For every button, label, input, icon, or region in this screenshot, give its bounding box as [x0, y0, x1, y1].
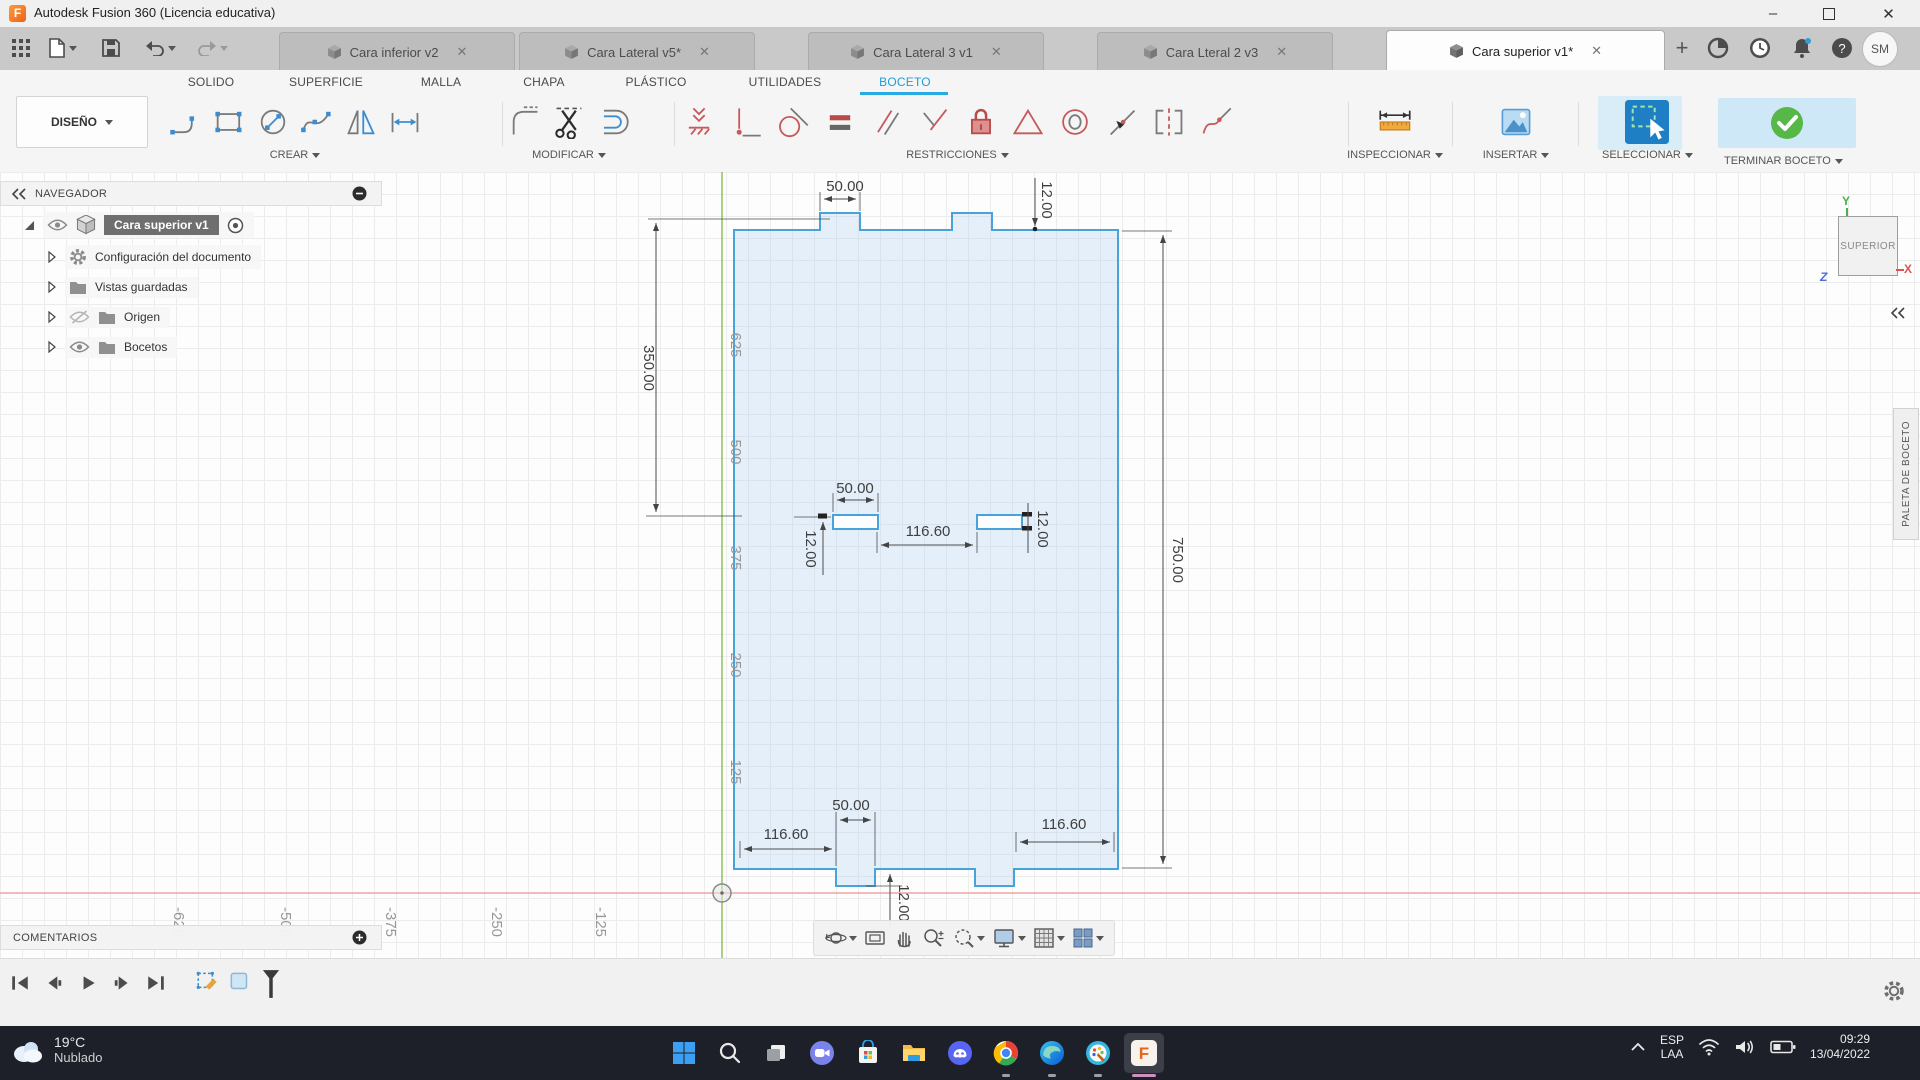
file-explorer-button[interactable] [894, 1033, 934, 1073]
dimension-label[interactable]: 350.00 [640, 345, 657, 391]
sketch-slot-right[interactable] [977, 515, 1022, 529]
running-indicator [1048, 1074, 1056, 1077]
file-explorer-icon [901, 1040, 927, 1066]
cube-icon [1449, 44, 1464, 59]
ribbon-separator [502, 102, 503, 146]
cube-icon [564, 45, 579, 60]
doc-tab-label: Cara Lateral 3 v1 [873, 45, 973, 60]
select-tool-icon-active[interactable] [1625, 100, 1669, 144]
finish-sketch-button[interactable] [1718, 98, 1856, 148]
visibility-eye-icon[interactable] [69, 340, 90, 354]
close-tab-icon[interactable]: ✕ [1276, 44, 1287, 60]
maximize-icon [1823, 8, 1835, 20]
fusion-360-taskbar-button[interactable]: F [1124, 1033, 1164, 1073]
panel-collapse-dot-icon[interactable] [352, 186, 367, 201]
chrome-button[interactable] [986, 1033, 1026, 1073]
caret-down-icon [1435, 153, 1443, 158]
tray-date: 13/04/2022 [1810, 1047, 1870, 1062]
extensions-icon [1706, 36, 1730, 60]
help-icon: ? [1830, 36, 1854, 60]
fusion-360-window: F Autodesk Fusion 360 (Licencia educativ… [0, 0, 1920, 1080]
orbit-button[interactable] [825, 927, 857, 949]
symmetry-constraint-icon[interactable] [1152, 105, 1186, 139]
extensions-button[interactable] [1702, 33, 1734, 63]
chrome-icon [993, 1040, 1019, 1066]
look-at-button[interactable] [864, 927, 886, 949]
wifi-icon[interactable] [1698, 1038, 1720, 1056]
svg-text:?: ? [1838, 41, 1845, 56]
workspace-tab-malla[interactable]: MALLA [421, 75, 461, 89]
cube-icon [327, 45, 342, 60]
navigator-item-label[interactable]: Vistas guardadas [95, 280, 188, 294]
timeline-strip [0, 958, 1920, 1027]
weather-condition: Nublado [54, 1050, 102, 1065]
doc-tab-label: Cara Lateral v5* [587, 45, 681, 60]
zoom-window-button[interactable] [953, 927, 985, 949]
edge-icon [1039, 1040, 1065, 1066]
caret-down-icon [1001, 153, 1009, 158]
ribbon-separator [1452, 102, 1453, 146]
timeline-step-forward-button[interactable] [112, 973, 132, 993]
notifications-button[interactable] [1786, 33, 1818, 63]
sketch-palette-tab[interactable]: PALETA DE BOCETO [1893, 408, 1919, 540]
running-indicator [1002, 1074, 1010, 1077]
doc-tab-cara-inferior-v2[interactable]: Cara inferior v2 ✕ [279, 32, 515, 71]
job-status-button[interactable] [1744, 33, 1776, 63]
redo-icon [197, 40, 217, 56]
weather-widget[interactable]: 19°C Nublado [10, 1034, 102, 1065]
display-settings-button[interactable] [992, 927, 1026, 949]
caret-down-icon [849, 936, 857, 941]
sketch-profile[interactable] [734, 213, 1118, 886]
paint-button[interactable] [1078, 1033, 1118, 1073]
design-label: DISEÑO [51, 115, 97, 129]
windows-logo-icon [672, 1041, 696, 1065]
group-label-seleccionar[interactable]: SELECCIONAR [1602, 149, 1693, 161]
canvas-navigation-bar [813, 920, 1115, 956]
viewcube-face-superior[interactable]: SUPERIOR [1838, 216, 1898, 276]
sketch-dimension-tool-icon[interactable] [388, 105, 422, 139]
user-avatar[interactable]: SM [1862, 31, 1898, 67]
lock-constraint-icon[interactable] [964, 105, 998, 139]
sketch-viewport: 625 500 375 250 125 -625 -500 -375 -250 … [0, 172, 1920, 958]
x-axis-stem [1896, 269, 1904, 271]
design-workspace-dropdown[interactable]: DISEÑO [16, 96, 148, 148]
workspace-tab-utilidades[interactable]: UTILIDADES [749, 75, 822, 89]
spline-tool-icon[interactable] [300, 105, 334, 139]
windows-taskbar: 19°C Nublado [0, 1026, 1920, 1080]
triangle-constraint-icon[interactable] [1011, 105, 1045, 139]
grid-label-x: -250 [488, 907, 505, 937]
navigator-item-root[interactable]: Cara superior v1 [24, 211, 254, 239]
group-modificar: MODIFICAR [508, 98, 630, 161]
dimension-label[interactable]: 116.60 [906, 523, 951, 540]
look-at-icon [864, 927, 886, 949]
timeline-playback-controls [10, 973, 166, 993]
hidden-icons-chevron[interactable] [1630, 1041, 1646, 1053]
dimension-label[interactable]: 750.00 [1169, 537, 1186, 583]
caret-down-icon [105, 120, 113, 125]
discord-icon [947, 1040, 973, 1066]
zoom-icon [922, 927, 946, 949]
system-tray: ESP LAA 09:29 13/04/2022 [1630, 1032, 1870, 1062]
rectangle-tool-icon[interactable] [212, 105, 246, 139]
measure-tool-icon[interactable] [1375, 105, 1415, 139]
perpendicular-constraint-icon[interactable] [917, 105, 951, 139]
timeline-go-to-end-button[interactable] [146, 973, 166, 993]
fillet-tool-icon[interactable] [508, 105, 542, 139]
workspace-tab-plastico[interactable]: PLÁSTICO [626, 75, 687, 89]
workspace-tab-boceto-active[interactable]: BOCETO [879, 75, 931, 89]
navigator-item-label[interactable]: Configuración del documento [95, 250, 251, 264]
folder-icon [69, 280, 87, 295]
store-icon [855, 1040, 881, 1066]
chat-icon [809, 1040, 835, 1066]
dimension-label[interactable]: 12.00 [1034, 510, 1051, 548]
start-button[interactable] [664, 1033, 704, 1073]
expand-caret-icon[interactable] [47, 311, 57, 323]
equal-constraint-icon[interactable] [823, 105, 857, 139]
task-view-icon [764, 1041, 788, 1065]
doc-tab-cara-lateral-v5[interactable]: Cara Lateral v5* ✕ [519, 32, 755, 71]
caret-down-icon [69, 46, 77, 51]
group-inspeccionar: INSPECCIONAR [1352, 98, 1438, 161]
running-indicator [1094, 1074, 1102, 1077]
undo-icon [145, 40, 165, 56]
volume-icon[interactable] [1734, 1038, 1756, 1056]
expand-handle-icon[interactable] [24, 220, 35, 231]
sketch-palette-label: PALETA DE BOCETO [1901, 421, 1912, 527]
title-bar: F Autodesk Fusion 360 (Licencia educativ… [0, 0, 1920, 28]
window-title: Autodesk Fusion 360 (Licencia educativa) [34, 5, 275, 20]
group-label-modificar[interactable]: MODIFICAR [532, 149, 606, 161]
caret-down-icon [1685, 153, 1693, 158]
caret-down-icon [220, 46, 228, 51]
group-label-insertar[interactable]: INSERTAR [1483, 149, 1550, 161]
undo-button[interactable] [138, 33, 182, 63]
comments-label: COMENTARIOS [13, 932, 97, 944]
keyboard-language-indicator[interactable]: ESP LAA [1660, 1033, 1684, 1061]
navigator-item-sketches[interactable]: Bocetos [47, 333, 177, 361]
workspace-tab-solido[interactable]: SOLIDO [188, 75, 235, 89]
caret-down-icon [312, 153, 320, 158]
discord-button[interactable] [940, 1033, 980, 1073]
doc-tab-label: Cara Lteral 2 v3 [1166, 45, 1259, 60]
folder-icon [98, 310, 116, 325]
zoom-window-icon [953, 927, 975, 949]
ribbon-separator [674, 102, 675, 146]
dimension-label[interactable]: 12.00 [802, 530, 819, 568]
navigator-title: NAVEGADOR [35, 188, 107, 200]
origin-marker[interactable] [713, 884, 731, 902]
caret-down-icon [1018, 936, 1026, 941]
task-view-button[interactable] [756, 1033, 796, 1073]
close-button[interactable]: ✕ [1857, 0, 1920, 27]
close-tab-icon[interactable]: ✕ [991, 44, 1002, 60]
caret-down-icon [1096, 936, 1104, 941]
view-cube[interactable]: Y SUPERIOR X Z [1812, 198, 1916, 298]
insert-image-icon[interactable] [1496, 105, 1536, 139]
comments-bar[interactable]: COMENTARIOS [0, 925, 382, 950]
fix-constraint-icon[interactable] [682, 105, 716, 139]
trim-tool-icon[interactable] [552, 105, 586, 139]
grid-icon [1033, 927, 1055, 949]
help-button[interactable]: ? [1826, 33, 1858, 63]
weather-temp: 19°C [54, 1034, 102, 1050]
ribbon-separator [1348, 102, 1349, 146]
viewcube-x-axis-label: X [1904, 262, 1912, 276]
doc-tab-label: Cara inferior v2 [350, 45, 439, 60]
grid-label-y: 500 [727, 439, 744, 464]
timeline-step-back-button[interactable] [44, 973, 64, 993]
group-restricciones: RESTRICCIONES [682, 98, 1233, 161]
bell-icon [1790, 36, 1814, 60]
caret-down-icon [598, 153, 606, 158]
orbit-icon [825, 927, 847, 949]
save-icon [102, 39, 120, 57]
grid-label-y: 375 [727, 545, 744, 570]
pan-button[interactable] [893, 927, 915, 949]
redo-button[interactable] [190, 33, 234, 63]
navigator-header[interactable]: NAVEGADOR [0, 181, 382, 206]
navigator-item-document-settings[interactable]: Configuración del documento [47, 243, 261, 271]
close-tab-icon[interactable]: ✕ [1591, 43, 1602, 59]
navigator-item-label-selected[interactable]: Cara superior v1 [104, 215, 219, 235]
app-launcher-button[interactable] [6, 33, 36, 63]
parallel-constraint-icon[interactable] [870, 105, 904, 139]
grid-label-y: 625 [727, 332, 744, 357]
component-cube-icon [76, 215, 96, 235]
viewports-icon [1072, 927, 1094, 949]
midpoint-constraint-icon[interactable] [1105, 105, 1139, 139]
grid-label-y: 250 [727, 652, 744, 677]
svg-text:F: F [1139, 1044, 1149, 1063]
expand-caret-icon[interactable] [47, 251, 57, 263]
group-label-terminar-boceto[interactable]: TERMINAR BOCETO [1724, 155, 1843, 167]
timeline-position-marker[interactable] [262, 969, 280, 999]
finish-sketch-check-icon [1767, 103, 1807, 143]
dimension-label[interactable]: 12.00 [1038, 181, 1055, 219]
cube-icon [1143, 45, 1158, 60]
fusion-logo-icon: F [9, 5, 26, 22]
paint-icon [1085, 1040, 1111, 1066]
folder-icon [98, 340, 116, 355]
dimension-label[interactable]: 116.60 [764, 826, 809, 843]
group-label-crear[interactable]: CREAR [270, 149, 321, 161]
fusion-360-icon: F [1130, 1039, 1158, 1067]
navigator-item-saved-views[interactable]: Vistas guardadas [47, 273, 198, 301]
workspace-tab-chapa[interactable]: CHAPA [523, 75, 564, 89]
activate-target-icon[interactable] [227, 217, 244, 234]
active-app-indicator [1132, 1074, 1156, 1077]
line-tool-icon[interactable] [168, 105, 202, 139]
close-tab-icon[interactable]: ✕ [456, 44, 467, 60]
coincident-constraint-icon[interactable] [729, 105, 763, 139]
active-tab-underline [860, 92, 948, 95]
dimension-label[interactable]: 50.00 [836, 480, 874, 497]
close-tab-icon[interactable]: ✕ [699, 44, 710, 60]
grid-label-x: -375 [382, 907, 399, 937]
viewcube-y-axis-label: Y [1842, 194, 1850, 208]
workspace-tab-superficie[interactable]: SUPERFICIE [289, 75, 363, 89]
navigator-item-label[interactable]: Origen [124, 310, 160, 324]
clock-icon [1748, 36, 1772, 60]
timeline-sketch-feature[interactable] [228, 969, 252, 995]
timeline-go-to-start-button[interactable] [10, 973, 30, 993]
caret-down-icon [1835, 159, 1843, 164]
zoom-button[interactable] [922, 927, 946, 949]
doc-tab-cara-lateral-3-v1[interactable]: Cara Lateral 3 v1 ✕ [808, 32, 1044, 71]
dimension-label[interactable]: 50.00 [832, 797, 870, 814]
file-menu-button[interactable] [42, 33, 84, 63]
taskbar-search-button[interactable] [710, 1033, 750, 1073]
group-label-restricciones[interactable]: RESTRICCIONES [906, 149, 1008, 161]
new-tab-button[interactable]: + [1666, 33, 1698, 63]
caret-down-icon [1057, 936, 1065, 941]
tray-time: 09:29 [1810, 1032, 1870, 1047]
caret-down-icon [977, 936, 985, 941]
grid-snap-button[interactable] [1033, 927, 1065, 949]
offset-tool-icon[interactable] [596, 105, 630, 139]
ribbon-separator [1578, 102, 1579, 146]
mirror-tool-icon[interactable] [344, 105, 378, 139]
timeline-play-button[interactable] [78, 973, 98, 993]
expand-palette-icon[interactable] [1890, 306, 1906, 320]
group-label-inspeccionar[interactable]: INSPECCIONAR [1347, 149, 1443, 161]
pan-hand-icon [893, 927, 915, 949]
navigator-item-origin[interactable]: Origen [47, 303, 170, 331]
navigator-item-label[interactable]: Bocetos [124, 340, 167, 354]
caret-down-icon [1541, 153, 1549, 158]
microsoft-store-button[interactable] [848, 1033, 888, 1073]
dimension-label[interactable]: 116.60 [1042, 816, 1087, 833]
collapse-panel-icon[interactable] [11, 188, 27, 200]
ribbon-toolbar: SOLIDO SUPERFICIE MALLA CHAPA PLÁSTICO U… [0, 70, 1920, 173]
concentric-constraint-icon[interactable] [1058, 105, 1092, 139]
doc-tab-label: Cara superior v1* [1472, 44, 1573, 59]
doc-tab-cara-lteral-2-v3[interactable]: Cara Lteral 2 v3 ✕ [1097, 32, 1333, 71]
dimension-label[interactable]: 12.00 [895, 884, 912, 922]
group-crear: CREAR [168, 98, 422, 161]
maximize-button[interactable] [1801, 0, 1857, 27]
timeline-settings-gear-icon[interactable] [1882, 979, 1906, 1003]
viewports-button[interactable] [1072, 927, 1104, 949]
tangent-constraint-icon[interactable] [776, 105, 810, 139]
search-icon [718, 1041, 742, 1065]
group-insertar: INSERTAR [1466, 98, 1566, 161]
group-seleccionar: SELECCIONAR [1602, 98, 1693, 161]
grid-label-y: 125 [727, 759, 744, 784]
battery-icon[interactable] [1770, 1039, 1796, 1055]
expand-comments-icon[interactable] [352, 930, 367, 945]
cloud-icon [10, 1035, 44, 1065]
timeline-sketch-feature-edited[interactable] [196, 969, 220, 995]
grid-menu-icon [12, 39, 30, 57]
teams-chat-button[interactable] [802, 1033, 842, 1073]
caret-down-icon [168, 46, 176, 51]
expand-caret-icon[interactable] [47, 341, 57, 353]
edge-button[interactable] [1032, 1033, 1072, 1073]
taskbar-center-icons: F [664, 1033, 1164, 1073]
document-tab-bar: Cara inferior v2 ✕ Cara Lateral v5* ✕ Ca… [0, 27, 1920, 70]
viewcube-z-axis-label: Z [1820, 270, 1827, 284]
visibility-eye-off-icon[interactable] [69, 310, 90, 324]
gear-icon [69, 248, 87, 266]
grid-label-x: -125 [592, 907, 609, 937]
expand-caret-icon[interactable] [47, 281, 57, 293]
cube-icon [850, 45, 865, 60]
visibility-eye-icon[interactable] [47, 218, 68, 232]
taskbar-clock[interactable]: 09:29 13/04/2022 [1810, 1032, 1870, 1062]
doc-tab-cara-superior-v1-active[interactable]: Cara superior v1* ✕ [1386, 30, 1665, 71]
curvature-constraint-icon[interactable] [1199, 105, 1233, 139]
save-button[interactable] [96, 33, 126, 63]
display-settings-icon [992, 927, 1016, 949]
dimension-label[interactable]: 50.00 [826, 178, 864, 195]
circle-tool-icon[interactable] [256, 105, 290, 139]
minimize-button[interactable]: – [1745, 0, 1801, 27]
file-icon [49, 38, 65, 58]
timeline-features [196, 969, 280, 999]
sketch-slot-left[interactable] [833, 515, 878, 529]
